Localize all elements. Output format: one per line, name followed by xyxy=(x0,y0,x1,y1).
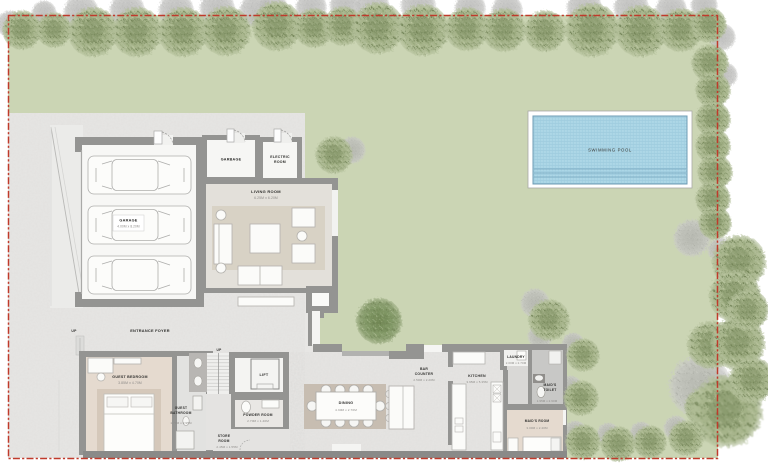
svg-text:2.00M x 2.70M: 2.00M x 2.70M xyxy=(506,361,527,365)
svg-text:6.25M x 6.20M: 6.25M x 6.20M xyxy=(254,196,278,200)
svg-text:BAR: BAR xyxy=(420,367,428,371)
svg-text:ELECTRIC: ELECTRIC xyxy=(270,155,290,159)
svg-text:MAID'S: MAID'S xyxy=(544,383,557,387)
svg-text:3.00M x 2.40M: 3.00M x 2.40M xyxy=(526,426,548,430)
svg-text:SWIMMING POOL: SWIMMING POOL xyxy=(588,148,632,153)
svg-text:ROOM: ROOM xyxy=(274,160,286,164)
svg-text:DINING: DINING xyxy=(339,401,354,405)
svg-text:ROOM: ROOM xyxy=(218,439,229,443)
svg-text:2.50M x 2.20M: 2.50M x 2.20M xyxy=(413,378,435,382)
svg-text:GARBAGE: GARBAGE xyxy=(221,158,242,162)
svg-text:TOILET: TOILET xyxy=(543,388,556,392)
svg-text:1.70M x 2.95M: 1.70M x 2.95M xyxy=(170,421,192,425)
svg-text:POWDER ROOM: POWDER ROOM xyxy=(243,413,273,417)
svg-text:UP: UP xyxy=(217,348,223,352)
svg-text:4.00M x 8.20M: 4.00M x 8.20M xyxy=(117,225,140,229)
svg-text:LIFT: LIFT xyxy=(259,373,268,377)
svg-text:KITCHEN: KITCHEN xyxy=(468,374,486,378)
svg-text:GUEST: GUEST xyxy=(175,406,188,410)
svg-text:LAUNDRY: LAUNDRY xyxy=(507,355,525,359)
svg-text:3.95M x 5.35M: 3.95M x 5.35M xyxy=(466,380,488,384)
svg-text:3.85M x 4.70M: 3.85M x 4.70M xyxy=(118,381,142,385)
svg-text:GARAGE: GARAGE xyxy=(119,219,137,223)
svg-text:ENTRANCE FOYER: ENTRANCE FOYER xyxy=(130,328,170,333)
svg-text:2.45M x 1.55M: 2.45M x 1.55M xyxy=(216,445,238,449)
svg-text:LIVING ROOM: LIVING ROOM xyxy=(251,189,281,194)
svg-text:1.95M x 2.90M: 1.95M x 2.90M xyxy=(537,399,558,403)
svg-text:BATHROOM: BATHROOM xyxy=(170,411,191,415)
svg-text:GUEST BEDROOM: GUEST BEDROOM xyxy=(112,375,147,379)
svg-text:STORE: STORE xyxy=(218,434,231,438)
svg-text:MAID'S ROOM: MAID'S ROOM xyxy=(525,419,550,423)
svg-text:UP: UP xyxy=(71,329,77,333)
svg-text:2.70M x 1.40M: 2.70M x 1.40M xyxy=(247,419,269,423)
svg-text:COUNTER: COUNTER xyxy=(415,372,434,376)
svg-text:4.30M x 2.70M: 4.30M x 2.70M xyxy=(335,408,357,412)
